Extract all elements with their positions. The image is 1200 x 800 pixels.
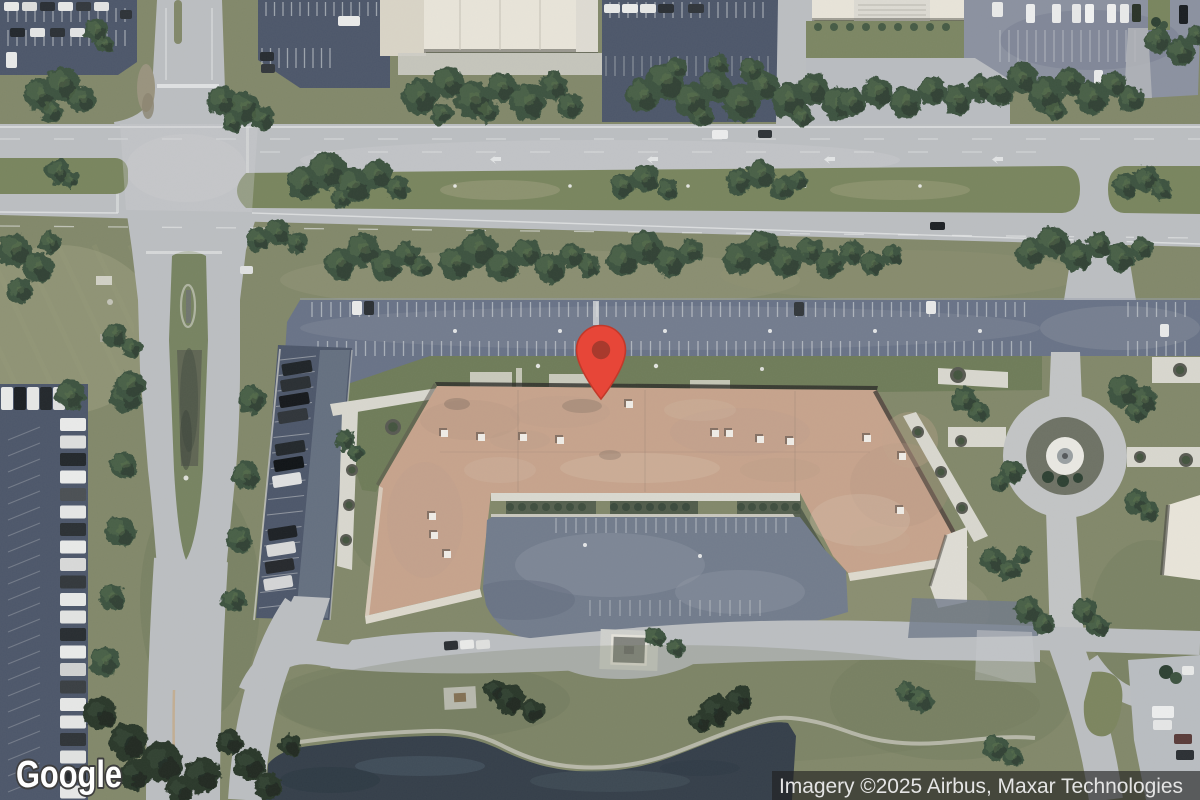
svg-text:Imagery ©2025 Airbus, Maxar Te: Imagery ©2025 Airbus, Maxar Technologies xyxy=(779,775,1183,798)
svg-text:Google: Google xyxy=(16,754,122,796)
